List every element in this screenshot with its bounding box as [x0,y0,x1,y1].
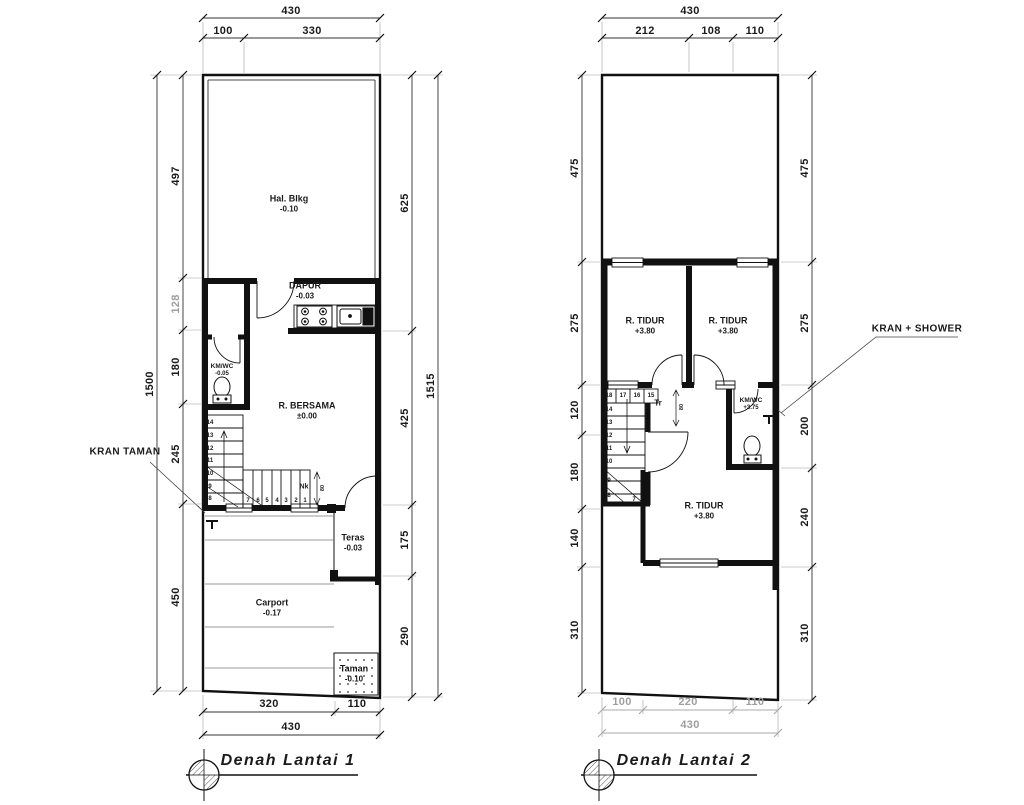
room-label-dapur: DAPUR -0.03 [289,280,321,301]
stair-step-number: 13 [606,420,613,426]
stair-step-number: 14 [207,420,214,426]
plan2-dim-top-total: 430 [680,5,699,17]
plan1-dim-left-seg1: 497 [170,166,182,185]
room-label-tidur-3: R. TIDUR +3.80 [685,500,724,521]
carport-paving [205,516,334,668]
plan-linework [0,0,1024,805]
stair-step-number: 11 [606,446,612,452]
plan1-dim-left-total: 1500 [144,371,156,397]
plan2-dim-top-seg3: 110 [746,25,765,37]
plan1-title: Denah Lantai 1 [221,752,356,770]
room-label-bersama: R. BERSAMA ±0.00 [278,400,335,421]
nosing-dim: 80 [320,485,326,491]
floor-plan-sheet: 430 100 330 1500 497 128 180 245 450 625… [0,0,1024,805]
stair-step-number: 7 [632,497,635,503]
plan1-door-arcs [214,281,377,508]
plan2-dim-right-seg5: 310 [799,623,811,642]
room-label-teras: Teras -0.03 [341,532,364,553]
plan2-dim-right-seg3: 200 [799,416,811,435]
plan2-extension-lines [577,22,817,737]
room-label-hal-blkg: Hal. Blkg -0.10 [270,193,309,214]
plan1-dim-top-seg1: 100 [213,25,232,37]
stove-icon [297,306,332,327]
room-label-tidur-1: R. TIDUR +3.80 [626,315,665,336]
plan2-dim-left-seg1: 475 [569,158,581,177]
plan1-dim-bottom-seg1: 320 [259,698,278,710]
plan2-dim-top-seg1: 212 [635,25,654,37]
stair-step-number: 7 [246,498,249,504]
plan2-dim-right-seg2: 275 [799,313,811,332]
plan2-dim-right-seg1: 475 [799,158,811,177]
plan1-dim-right-seg2: 425 [399,408,411,427]
plan2-dim-bottom-seg2: 220 [678,696,697,708]
plan2-dim-left-seg5: 140 [569,528,581,547]
stair-step-number: 9 [208,484,211,490]
stair-step-number: 12 [207,446,214,452]
plan2-dim-left-seg4: 180 [569,462,581,481]
stair-step-number: 11 [207,458,213,464]
plan2-dim-left-seg3: 120 [569,400,581,419]
plan2-walls [602,262,778,590]
plan1-dim-left-seg5: 450 [170,587,182,606]
tr-dim: 80 [679,404,685,410]
plan1-dim-top-seg2: 330 [302,25,321,37]
stair-step-number: 3 [284,498,287,504]
stair-step-number: 16 [634,393,641,399]
plan2-dim-bottom-total: 430 [680,719,699,731]
plan1-dim-bottom-seg2: 110 [348,698,367,710]
sink-icon [337,306,375,327]
stair-step-number: 12 [606,433,613,439]
stair-step-number: 4 [275,498,278,504]
stair-step-number: 10 [606,459,613,465]
plan1-dim-right-seg1: 625 [399,193,411,212]
plan2-dim-left-seg6: 310 [569,620,581,639]
toilet-icon-plan2 [744,436,761,463]
stair-step-number: 8 [607,493,610,499]
stairs-plan1 [205,415,320,508]
toilet-icon-plan1 [213,377,231,403]
room-label-kmwc-2: KM/WC +3.75 [740,397,763,413]
plan1-dim-bottom-total: 430 [281,721,300,733]
plan1-pillars [327,504,338,581]
kran-taman-leader [150,462,205,513]
plan1-dim-left-seg2: 128 [170,294,182,313]
plan2-dim-bottom-seg3: 110 [746,696,765,708]
kran-shower-annotation: KRAN + SHOWER [872,324,962,335]
nosing-label: Nk [300,484,309,491]
tr-label: Tr [654,399,662,408]
plan2-dim-top-seg2: 108 [701,25,720,37]
kran-taman-symbol [206,521,218,529]
plan2-dim-bottom-seg1: 100 [612,696,631,708]
room-label-carport: Carport -0.17 [256,597,289,618]
plan2-dimension-ticks [578,14,816,704]
stair-step-number: 2 [294,498,297,504]
stair-step-number: 6 [256,498,259,504]
stair-step-number: 10 [207,471,214,477]
plan2-title: Denah Lantai 2 [617,752,752,770]
plan2-dim-right-seg4: 240 [799,507,811,526]
plan2-door-arcs [648,355,758,472]
stair-step-number: 17 [620,393,627,399]
plan1-dim-right-seg3: 175 [399,530,411,549]
room-label-tidur-2: R. TIDUR +3.80 [709,315,748,336]
stair-step-number: 13 [207,433,214,439]
room-label-taman: Taman -0.10 [340,663,368,684]
stair-step-number: 14 [606,407,613,413]
stair-step-number: 8 [208,496,211,502]
kran-shower-leader [778,337,958,416]
plan2-dim-left-seg2: 275 [569,313,581,332]
stair-step-number: 9 [607,478,610,484]
plan1-dim-left-seg4: 245 [170,444,182,463]
room-label-kmwc-1: KM/WC -0.05 [211,363,234,379]
plan1-dim-right-total: 1515 [425,373,437,399]
plan1-dim-left-seg3: 180 [170,357,182,376]
stair-step-number: 1 [303,498,306,504]
kran-taman-annotation: KRAN TAMAN [89,447,160,458]
stair-step-number: 5 [265,498,268,504]
plan1-dimension-lines [157,18,438,735]
plan1-dim-right-seg4: 290 [399,626,411,645]
stair-step-number: 18 [606,393,613,399]
plan1-dim-top-total: 430 [281,5,300,17]
